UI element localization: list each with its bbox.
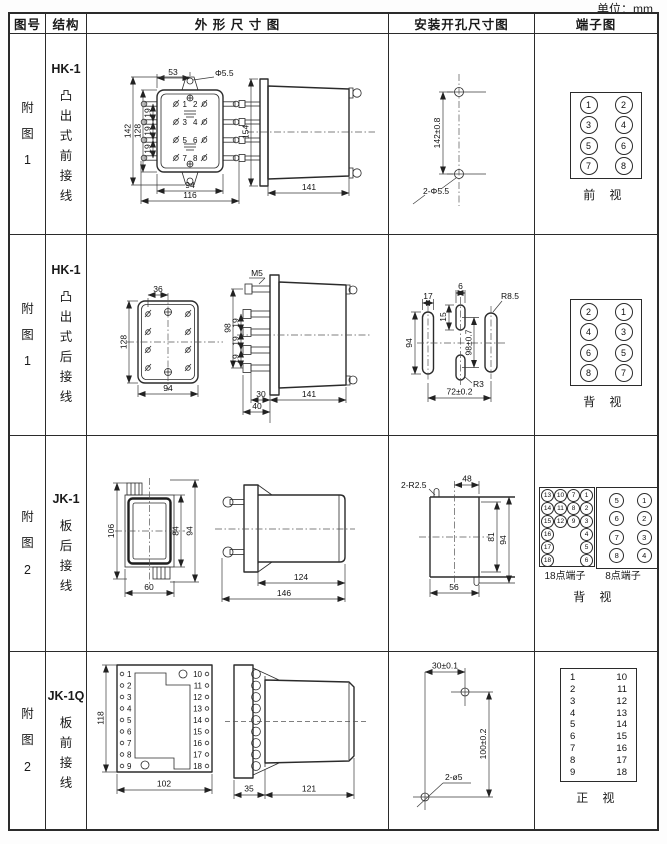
dim-label: 2-R2.5 bbox=[401, 480, 427, 490]
view-caption: 背 视 bbox=[550, 588, 640, 605]
terminal-circle: 8 bbox=[615, 157, 633, 175]
dim-label: 142 bbox=[123, 124, 133, 138]
dim-label: Φ5.5 bbox=[215, 68, 234, 78]
terminal-circle: 15 bbox=[541, 515, 554, 528]
header-outline-dimensions: 外 形 尺 寸 图 bbox=[87, 14, 389, 34]
dimension-lines: 142±0.8 2-Φ5.5 bbox=[413, 92, 456, 204]
terminal-circle: 3 bbox=[580, 116, 598, 134]
mounting-slots bbox=[417, 297, 505, 387]
terminal-box-8pt: 5 1 6 2 7 3 8 4 bbox=[596, 487, 657, 569]
dim-label: 19 bbox=[231, 354, 241, 364]
dim-label: 19 bbox=[143, 144, 153, 154]
model-label: JK-1Q bbox=[48, 689, 85, 703]
dimension-lines: 17 94 6 15 98±0.7 R8.5 R3 bbox=[404, 281, 519, 402]
dim-label: 30±0.1 bbox=[432, 661, 458, 671]
dim-label: 40 bbox=[252, 401, 262, 411]
terminal-circle: 4 bbox=[580, 528, 593, 541]
dim-label: 56 bbox=[449, 582, 459, 592]
row3-terminal-cell: 13 10 7 1 14 11 8 2 15 12 9 3 16 4 17 5 bbox=[535, 436, 657, 652]
terminal-number: 6 bbox=[570, 731, 575, 742]
terminal-box-front-view: 110 211 312 413 514 615 716 817 918 bbox=[560, 668, 637, 782]
row4-mount-cell: 30±0.1 100±0.2 2-ø5 bbox=[389, 652, 535, 829]
svg-text:3: 3 bbox=[127, 693, 132, 702]
terminal-number: 17 bbox=[616, 755, 627, 766]
svg-text:3: 3 bbox=[183, 118, 188, 127]
dim-label: 100±0.2 bbox=[478, 728, 488, 759]
terminal-number: 3 bbox=[570, 696, 575, 707]
dim-label: 17 bbox=[423, 291, 433, 301]
terminal-circle: 5 bbox=[615, 344, 633, 362]
terminal-circle: 3 bbox=[615, 323, 633, 341]
mounting-holes bbox=[447, 88, 486, 179]
terminal-circle: 4 bbox=[580, 323, 598, 341]
terminal-circle: 7 bbox=[609, 530, 624, 545]
terminal-number: 7 bbox=[570, 743, 575, 754]
terminal-number: 8 bbox=[570, 755, 575, 766]
view-caption: 正 视 bbox=[553, 789, 643, 806]
terminal-circle: 10 bbox=[554, 489, 567, 502]
dim-label: 124 bbox=[294, 572, 308, 582]
dim-label: 98±0.7 bbox=[464, 329, 474, 355]
dim-label: 141 bbox=[302, 389, 316, 399]
terminal-circle: 1 bbox=[580, 96, 598, 114]
terminal-circle: 6 bbox=[609, 511, 624, 526]
terminal-circle: 13 bbox=[541, 489, 554, 502]
header-structure: 结构 bbox=[46, 14, 87, 34]
terminal-circle: 2 bbox=[615, 96, 633, 114]
svg-text:10: 10 bbox=[193, 670, 202, 679]
dim-label: 19 bbox=[143, 108, 153, 118]
view-caption: 前 视 bbox=[560, 186, 650, 203]
svg-text:14: 14 bbox=[193, 716, 202, 725]
terminal-8pt-caption: 8点端子 bbox=[593, 567, 653, 582]
terminal-number: 15 bbox=[616, 731, 627, 742]
terminal-18pt-caption: 18点端子 bbox=[535, 567, 595, 582]
terminal-circle: 1 bbox=[615, 303, 633, 321]
jk1q-outline-drawing: 1 2 3 4 5 6 7 8 9 10 11 12 13 14 15 16 1 bbox=[87, 652, 389, 829]
terminal-number: 12 bbox=[616, 696, 627, 707]
dim-label: 106 bbox=[106, 524, 116, 538]
terminal-circle: 14 bbox=[541, 502, 554, 515]
row2-fig-cell: 附 图 1 bbox=[10, 235, 46, 436]
dim-label: 2-ø5 bbox=[445, 772, 463, 782]
spec-table: 图号 结构 外 形 尺 寸 图 安装开孔尺寸图 端子图 附 图 1 HK-1 凸… bbox=[8, 12, 659, 831]
relay-rear-view bbox=[127, 293, 223, 391]
terminal-circle: 8 bbox=[567, 502, 580, 515]
terminal-circle: 2 bbox=[580, 502, 593, 515]
relay-side-view bbox=[225, 665, 369, 778]
view-caption: 背 视 bbox=[560, 393, 650, 410]
dim-label: 118 bbox=[96, 711, 106, 725]
dim-label: 84 bbox=[171, 526, 181, 536]
terminal-circle: 2 bbox=[580, 303, 598, 321]
structure-description: 凸 出 式 后 接 线 bbox=[60, 287, 73, 407]
terminal-number: 4 bbox=[570, 708, 575, 719]
pin-numbers: 1 2 3 4 5 6 7 8 bbox=[183, 100, 198, 163]
row3-mount-cell: 48 2-R2.5 81 94 56 bbox=[389, 436, 535, 652]
svg-text:8: 8 bbox=[193, 154, 198, 163]
terminal-number: 18 bbox=[616, 767, 627, 778]
svg-text:2: 2 bbox=[127, 682, 132, 691]
terminal-circle: 5 bbox=[580, 137, 598, 155]
dimension-lines: 124 146 bbox=[222, 558, 345, 602]
terminal-circle: 6 bbox=[615, 137, 633, 155]
terminal-circle: 6 bbox=[580, 344, 598, 362]
terminal-circle: 4 bbox=[637, 548, 652, 563]
svg-text:4: 4 bbox=[193, 118, 198, 127]
terminal-number: 14 bbox=[616, 719, 627, 730]
dim-label: 48 bbox=[462, 474, 472, 484]
terminal-circle: 7 bbox=[567, 489, 580, 502]
terminal-circle: 2 bbox=[637, 511, 652, 526]
terminal-circle: 5 bbox=[580, 541, 593, 554]
svg-text:5: 5 bbox=[183, 136, 188, 145]
dim-label: 72±0.2 bbox=[447, 387, 473, 397]
svg-text:18: 18 bbox=[193, 762, 202, 771]
terminal-circle: 1 bbox=[637, 493, 652, 508]
svg-text:11: 11 bbox=[194, 682, 203, 691]
dim-label: R3 bbox=[473, 379, 484, 389]
dim-label: 128 bbox=[133, 124, 143, 138]
terminal-circle: 8 bbox=[609, 548, 624, 563]
structure-description: 板 后 接 线 bbox=[60, 516, 73, 596]
dim-label: 19 bbox=[143, 126, 153, 136]
svg-text:2: 2 bbox=[193, 100, 198, 109]
terminal-circle: 8 bbox=[580, 364, 598, 382]
row2-terminal-cell: 2 1 4 3 6 5 8 7 背 视 bbox=[535, 235, 657, 436]
dim-label: 94 bbox=[404, 338, 414, 348]
dim-label: 154 bbox=[241, 125, 251, 139]
terminal-circle: 9 bbox=[567, 515, 580, 528]
terminal-number: 16 bbox=[616, 743, 627, 754]
svg-text:5: 5 bbox=[127, 716, 132, 725]
svg-text:9: 9 bbox=[127, 762, 132, 771]
dim-label: 141 bbox=[302, 182, 316, 192]
hk1-rear-wiring-outline-drawing: 36 128 94 bbox=[87, 235, 389, 436]
terminal-circle: 3 bbox=[580, 515, 593, 528]
row4-structure-cell: JK-1Q 板 前 接 线 bbox=[46, 652, 87, 829]
row3-structure-cell: JK-1 板 后 接 线 bbox=[46, 436, 87, 652]
pin-numbers: 1 2 3 4 5 6 7 8 9 10 11 12 13 14 15 16 1 bbox=[120, 670, 209, 771]
dim-label: 142±0.8 bbox=[432, 117, 442, 148]
dim-label: 102 bbox=[157, 779, 171, 789]
dimension-lines: 98 19 19 19 30 141 40 bbox=[223, 289, 347, 423]
dim-label: 60 bbox=[144, 582, 154, 592]
dim-label: 121 bbox=[302, 784, 316, 794]
structure-description: 板 前 接 线 bbox=[60, 713, 73, 793]
dim-label: R8.5 bbox=[501, 291, 519, 301]
terminal-circle: 18 bbox=[541, 554, 554, 567]
fig-label: 附 图 2 bbox=[21, 701, 34, 780]
svg-text:4: 4 bbox=[127, 705, 132, 714]
dim-label: 15 bbox=[438, 312, 448, 322]
terminal-circle: 4 bbox=[615, 116, 633, 134]
svg-text:6: 6 bbox=[193, 136, 198, 145]
dim-label: 81 bbox=[486, 532, 496, 542]
terminal-circle: 11 bbox=[554, 502, 567, 515]
model-label: HK-1 bbox=[51, 62, 80, 76]
svg-text:12: 12 bbox=[193, 693, 202, 702]
dim-label: 94 bbox=[163, 383, 173, 393]
relay-front-view bbox=[157, 77, 223, 185]
jk1-mounting-hole-drawing: 48 2-R2.5 81 94 56 bbox=[389, 436, 535, 652]
dim-label: 94 bbox=[185, 526, 195, 536]
dim-label: 6 bbox=[458, 281, 463, 291]
row1-mount-cell: 142±0.8 2-Φ5.5 bbox=[389, 34, 535, 235]
terminal-circle: 5 bbox=[609, 493, 624, 508]
relay-side-view bbox=[215, 485, 355, 572]
relay-side-view: M5 bbox=[237, 268, 372, 395]
fig-label: 附 图 2 bbox=[21, 504, 34, 583]
terminal-number: 5 bbox=[570, 719, 575, 730]
terminal-number: 2 bbox=[570, 684, 575, 695]
svg-text:17: 17 bbox=[193, 751, 202, 760]
svg-text:13: 13 bbox=[193, 705, 202, 714]
svg-text:7: 7 bbox=[183, 154, 188, 163]
dim-label: M5 bbox=[251, 268, 263, 278]
dim-label: 30 bbox=[256, 389, 266, 399]
terminal-circle: 3 bbox=[637, 530, 652, 545]
dimension-lines: 48 2-R2.5 81 94 56 bbox=[401, 474, 509, 598]
terminal-number: 9 bbox=[570, 767, 575, 778]
row3-fig-cell: 附 图 2 bbox=[10, 436, 46, 652]
dim-label: 19 bbox=[231, 336, 241, 346]
fig-label: 附 图 1 bbox=[21, 296, 34, 375]
dim-label: 128 bbox=[119, 335, 129, 349]
dim-label: 94 bbox=[185, 180, 195, 190]
svg-text:8: 8 bbox=[127, 751, 132, 760]
terminal-circle: 17 bbox=[541, 541, 554, 554]
dim-label: 94 bbox=[498, 535, 508, 545]
terminal-number: 1 bbox=[570, 672, 575, 683]
dim-label: 19 bbox=[231, 318, 241, 328]
svg-text:6: 6 bbox=[127, 728, 132, 737]
row2-mount-cell: 17 94 6 15 98±0.7 R8.5 R3 bbox=[389, 235, 535, 436]
header-fig-number: 图号 bbox=[10, 14, 46, 34]
row4-terminal-cell: 110 211 312 413 514 615 716 817 918 正 视 bbox=[535, 652, 657, 829]
row1-outline-cell: 1 2 3 4 5 6 7 8 53 Φ5.5 bbox=[87, 34, 389, 235]
terminal-circle: 6 bbox=[580, 554, 593, 567]
hk1-rear-mounting-hole-drawing: 17 94 6 15 98±0.7 R8.5 R3 bbox=[389, 235, 535, 436]
svg-text:16: 16 bbox=[193, 739, 202, 748]
terminal-box-front-view: 1 2 3 4 5 6 7 8 bbox=[570, 92, 642, 179]
relay-side-view bbox=[239, 79, 375, 186]
row1-fig-cell: 附 图 1 bbox=[10, 34, 46, 235]
manual-page: 单位：mm 图号 结构 外 形 尺 寸 图 安装开孔尺寸图 端子图 附 图 1 … bbox=[0, 0, 667, 844]
dimension-lines: 30±0.1 100±0.2 2-ø5 bbox=[417, 661, 489, 808]
dim-label: 116 bbox=[183, 190, 197, 200]
terminal-circle: 7 bbox=[615, 364, 633, 382]
row4-outline-cell: 1 2 3 4 5 6 7 8 9 10 11 12 13 14 15 16 1 bbox=[87, 652, 389, 829]
header-terminal-diagram: 端子图 bbox=[535, 14, 657, 34]
jk1-outline-drawing: 106 84 94 60 bbox=[87, 436, 389, 652]
terminal-circle: 16 bbox=[541, 528, 554, 541]
dim-label: 53 bbox=[168, 67, 178, 77]
terminal-number: 11 bbox=[617, 684, 627, 695]
row1-structure-cell: HK-1 凸 出 式 前 接 线 bbox=[46, 34, 87, 235]
model-label: HK-1 bbox=[51, 263, 80, 277]
row4-fig-cell: 附 图 2 bbox=[10, 652, 46, 829]
model-label: JK-1 bbox=[52, 492, 79, 506]
row1-terminal-cell: 1 2 3 4 5 6 7 8 前 视 bbox=[535, 34, 657, 235]
hk1-front-wiring-outline-drawing: 1 2 3 4 5 6 7 8 53 Φ5.5 bbox=[87, 34, 389, 235]
svg-text:15: 15 bbox=[193, 728, 202, 737]
terminal-circle: 1 bbox=[580, 489, 593, 502]
terminal-box-rear-view: 2 1 4 3 6 5 8 7 bbox=[570, 299, 642, 386]
terminal-number: 10 bbox=[616, 672, 627, 683]
dimension-lines: 53 Φ5.5 142 128 19 19 19 bbox=[123, 67, 240, 204]
row2-outline-cell: 36 128 94 bbox=[87, 235, 389, 436]
svg-text:1: 1 bbox=[127, 670, 132, 679]
header-mounting-holes: 安装开孔尺寸图 bbox=[389, 14, 535, 34]
terminal-box-18pt: 13 10 7 1 14 11 8 2 15 12 9 3 16 4 17 5 bbox=[539, 487, 595, 567]
jk1q-mounting-hole-drawing: 30±0.1 100±0.2 2-ø5 bbox=[389, 652, 535, 829]
svg-text:7: 7 bbox=[127, 739, 132, 748]
structure-description: 凸 出 式 前 接 线 bbox=[60, 86, 73, 206]
terminal-circle: 7 bbox=[580, 157, 598, 175]
hk1-front-mounting-hole-drawing: 142±0.8 2-Φ5.5 bbox=[389, 34, 535, 235]
dim-label: 36 bbox=[153, 284, 163, 294]
dim-label: 2-Φ5.5 bbox=[423, 186, 449, 196]
dim-label: 35 bbox=[244, 784, 254, 794]
dim-label: 146 bbox=[277, 588, 291, 598]
svg-text:1: 1 bbox=[183, 100, 188, 109]
row3-outline-cell: 106 84 94 60 bbox=[87, 436, 389, 652]
terminal-circle: 12 bbox=[554, 515, 567, 528]
terminal-number: 13 bbox=[616, 708, 627, 719]
fig-label: 附 图 1 bbox=[21, 95, 34, 174]
relay-front-pins bbox=[141, 100, 239, 161]
row2-structure-cell: HK-1 凸 出 式 后 接 线 bbox=[46, 235, 87, 436]
